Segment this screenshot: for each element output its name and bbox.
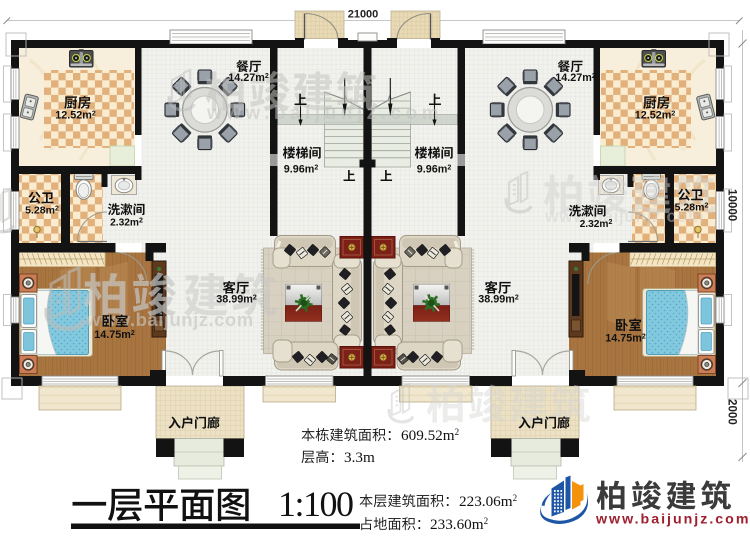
svg-text:14.27m2: 14.27m2 — [555, 72, 596, 84]
svg-text:www.baijunjz.com: www.baijunjz.com — [595, 512, 750, 528]
svg-text:223.06m2: 223.06m2 — [459, 493, 517, 510]
svg-text:9.96m2: 9.96m2 — [417, 164, 452, 176]
svg-text:10000: 10000 — [726, 189, 739, 221]
svg-text:2.32m2: 2.32m2 — [110, 218, 143, 229]
svg-text:www.baijunjz.com: www.baijunjz.com — [206, 103, 443, 124]
svg-text:21000: 21000 — [348, 9, 379, 21]
svg-text:14.75m2: 14.75m2 — [94, 329, 135, 341]
svg-text:12.52m2: 12.52m2 — [55, 110, 96, 122]
svg-text:2000: 2000 — [726, 399, 739, 425]
svg-text:2.32m2: 2.32m2 — [580, 219, 613, 230]
svg-text:14.27m2: 14.27m2 — [228, 72, 269, 84]
svg-text:38.99m2: 38.99m2 — [478, 294, 519, 306]
svg-text:609.52m2: 609.52m2 — [401, 427, 459, 444]
svg-text:9.96m2: 9.96m2 — [284, 164, 319, 176]
svg-text:12.52m2: 12.52m2 — [635, 110, 676, 122]
svg-text:14.75m2: 14.75m2 — [605, 333, 646, 345]
svg-text:3.3m: 3.3m — [344, 449, 375, 466]
svg-text:233.60m2: 233.60m2 — [430, 516, 488, 533]
svg-text:5.28m2: 5.28m2 — [25, 205, 59, 217]
svg-text:5.28m2: 5.28m2 — [675, 202, 709, 214]
svg-text:1:100: 1:100 — [278, 484, 353, 524]
svg-text:38.99m2: 38.99m2 — [216, 294, 257, 306]
